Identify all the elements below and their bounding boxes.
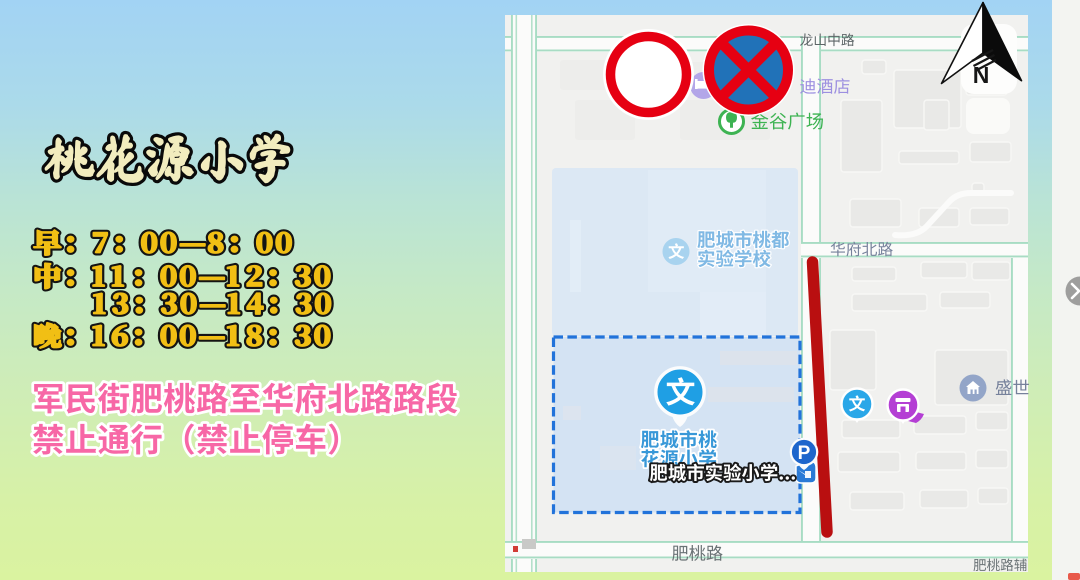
- svg-text:N: N: [973, 62, 990, 88]
- svg-text:P: P: [798, 443, 811, 464]
